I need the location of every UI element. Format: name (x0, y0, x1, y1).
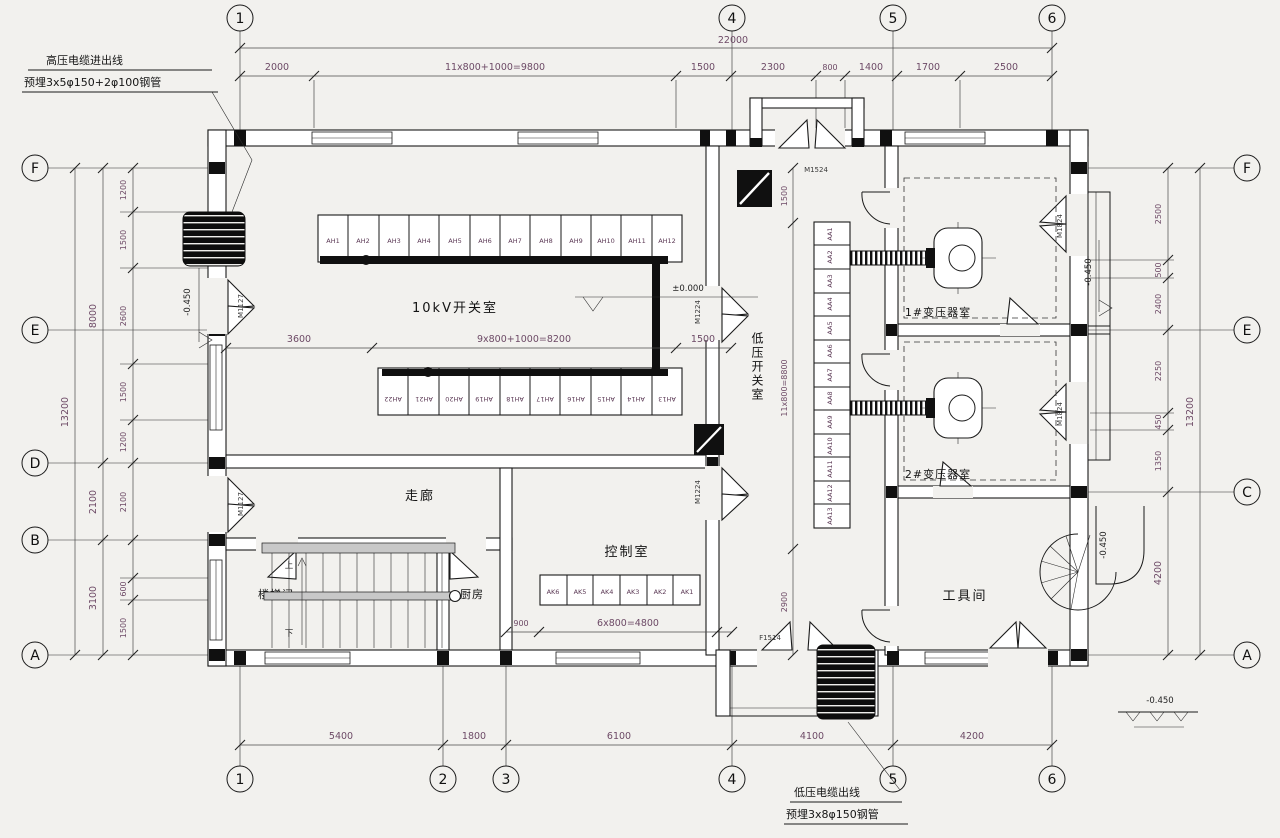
door-code-top: M1524 (804, 166, 828, 174)
window (210, 345, 222, 430)
cabinet-label: AH7 (508, 237, 521, 245)
elevation-value: ±0.000 (672, 284, 703, 294)
hv-cable-entry (183, 212, 245, 266)
bubble-bottom-5: 5 (889, 772, 898, 788)
bubble-top-1: 1 (236, 11, 245, 27)
cabinet-label: AA8 (826, 391, 834, 404)
room-label-10kv: 10kV开关室 (412, 300, 498, 316)
dim-bottom-seg: 4200 (960, 731, 984, 742)
cabinet-label: AH4 (417, 237, 430, 245)
dim-label: 3600 (287, 334, 311, 345)
dim-label: 900 (513, 619, 528, 628)
room-label-tool: 工具间 (942, 589, 987, 604)
cabinet-label: AA3 (826, 274, 834, 287)
cabinet-label: AH17 (536, 395, 554, 403)
dim-left-mid: 3100 (88, 586, 99, 610)
cabinet-label: AA13 (826, 507, 834, 524)
dim-right-outer: 13200 (1185, 397, 1196, 427)
cabinet-label: AK1 (681, 588, 694, 596)
stair-up-label: 上 (285, 561, 294, 571)
cabinet-label: AH13 (658, 395, 676, 403)
cabinet-label: AK4 (601, 588, 614, 596)
cabinet-label: AH18 (506, 395, 524, 403)
dim-left-inner: 1500 (119, 382, 128, 402)
cabinet-label: AH10 (597, 237, 615, 245)
cabinet-label: AA5 (826, 321, 834, 334)
dim-top-seg: 2500 (994, 62, 1018, 73)
cabinet-label: AA10 (826, 437, 834, 454)
door-code-mid-2: M1224 (694, 480, 702, 504)
annotation-hv-line1: 高压电缆进出线 (46, 53, 123, 67)
window (210, 560, 222, 640)
cabinet-label: AH1 (326, 237, 339, 245)
dim-right-inner: 500 (1154, 262, 1163, 277)
cabinet-row-top: AH1 AH2 AH3 AH4 AH5 AH6 AH7 AH8 AH9 AH10… (318, 215, 682, 262)
window (518, 132, 598, 144)
dim-right-inner: 450 (1154, 414, 1163, 429)
cabinet-label: AH15 (597, 395, 615, 403)
dim-left-inner: 1500 (119, 230, 128, 250)
window (265, 652, 350, 664)
window (905, 132, 985, 144)
room-label-control: 控制室 (604, 544, 649, 560)
dim-label: 1500 (780, 186, 789, 206)
dim-top-seg: 2300 (761, 62, 785, 73)
ground-elevation: -0.450 (1146, 696, 1173, 706)
cabinet-label: AH6 (478, 237, 491, 245)
cabinet-label: AH12 (658, 237, 676, 245)
room-label-lv-switch: 低压开关室 (750, 332, 764, 402)
cabinet-label: AA6 (826, 344, 834, 357)
cabinet-column-lv: AA1 AA2 AA3 AA4 AA5 AA6 AA7 AA8 AA9 AA10… (814, 222, 850, 528)
bubble-right-F: F (1243, 161, 1251, 177)
dim-left-inner: 1200 (119, 432, 128, 452)
bubble-bottom-3: 3 (502, 772, 511, 788)
cabinet-label: AH2 (356, 237, 369, 245)
dim-top-seg: 11x800+1000=9800 (445, 62, 545, 73)
dim-top-seg: 2000 (265, 62, 289, 73)
room-label-corridor: 走廊 (405, 488, 435, 504)
dim-label: 1500 (691, 334, 715, 345)
plan-svg: 1 4 5 6 1 2 3 4 5 6 F E D B A F E C A 22… (0, 0, 1280, 838)
annotation-lv-line2: 预埋3x8φ150钢管 (786, 807, 879, 821)
elevation-value: -0.450 (183, 288, 193, 315)
cabinet-label: AA12 (826, 484, 834, 501)
cabinet-label: AK6 (547, 588, 560, 596)
dim-left-outer: 13200 (60, 397, 71, 427)
dim-bottom-seg: 4100 (800, 731, 824, 742)
cabinet-label: AH11 (628, 237, 646, 245)
door-code-bottom: F1514 (759, 634, 781, 642)
dim-bottom-seg: 5400 (329, 731, 353, 742)
cabinet-label: AH14 (627, 395, 645, 403)
bubble-right-A: A (1242, 648, 1252, 664)
cabinet-label: AK5 (574, 588, 587, 596)
cabinet-label: AH3 (387, 237, 400, 245)
dim-top-seg: 800 (822, 63, 837, 72)
annotation-lv-line1: 低压电缆出线 (794, 785, 860, 799)
bubble-left-E: E (31, 323, 40, 339)
dim-right-inner: 4200 (1153, 561, 1164, 585)
cabinet-label: AH5 (448, 237, 461, 245)
dim-top-seg: 1400 (859, 62, 883, 73)
bubble-top-4: 4 (728, 11, 737, 27)
window (556, 652, 640, 664)
door-code-left-1: M1127 (237, 294, 245, 318)
dim-left-inner: 2100 (119, 492, 128, 512)
cabinet-label: AH21 (415, 395, 433, 403)
dim-left-inner: 600 (119, 581, 128, 596)
bubble-left-F: F (31, 161, 39, 177)
dim-label: 9x800+1000=8200 (477, 334, 571, 345)
elevation-spiral: -0.450 (1099, 531, 1109, 558)
cabinet-label: AH9 (569, 237, 582, 245)
cabinet-label: AA7 (826, 368, 834, 381)
bubble-top-6: 6 (1048, 11, 1057, 27)
dim-right-inner: 2500 (1154, 204, 1163, 224)
dim-bottom-seg: 6100 (607, 731, 631, 742)
cabinet-label: AH19 (475, 395, 493, 403)
cabinet-label: AA11 (826, 460, 834, 477)
dim-label: 6x800=4800 (597, 618, 659, 629)
floor-plan-drawing: 1 4 5 6 1 2 3 4 5 6 F E D B A F E C A 22… (0, 0, 1280, 838)
cabinet-label: AA1 (826, 227, 834, 240)
bubble-bottom-4: 4 (728, 772, 737, 788)
cabinet-label: AK3 (627, 588, 640, 596)
elevation-value: -0.450 (1084, 258, 1094, 285)
dim-left-inner: 2600 (119, 306, 128, 326)
window (312, 132, 392, 144)
dim-top-seg: 1500 (691, 62, 715, 73)
room-label-transformer1: 1#变压器室 (905, 305, 971, 319)
cabinet-label: AH22 (384, 395, 402, 403)
dim-bottom-seg: 1800 (462, 731, 486, 742)
door-code-right-2: M1824 (1056, 402, 1064, 426)
bubble-left-B: B (30, 533, 40, 549)
cabinet-label: AA4 (826, 297, 834, 310)
door-code-left-2: M1127 (237, 492, 245, 516)
cabinet-label: AK2 (654, 588, 667, 596)
dim-right-inner: 1350 (1154, 451, 1163, 471)
lv-cable-exit (817, 645, 875, 719)
cabinet-label: AA9 (826, 415, 834, 428)
dim-left-mid: 2100 (88, 490, 99, 514)
cabinet-label: AA2 (826, 250, 834, 263)
dim-left-mid: 8000 (88, 304, 99, 328)
dim-label: 2900 (780, 592, 789, 612)
dim-label: 11x800=8800 (780, 359, 789, 416)
dim-right-inner: 2250 (1154, 361, 1163, 381)
cabinet-label: AH8 (539, 237, 552, 245)
door-code-mid-1: M1224 (694, 300, 702, 324)
bubble-left-A: A (30, 648, 40, 664)
bubble-right-C: C (1242, 485, 1252, 501)
bubble-right-E: E (1243, 323, 1252, 339)
bubble-top-5: 5 (889, 11, 898, 27)
dim-total-top: 22000 (718, 35, 748, 46)
door-code-right-1: M1824 (1056, 214, 1064, 238)
dim-left-inner: 1500 (119, 618, 128, 638)
bubble-bottom-6: 6 (1048, 772, 1057, 788)
cabinet-label: AH16 (567, 395, 585, 403)
room-label-transformer2: 2#变压器室 (905, 467, 971, 481)
dim-right-inner: 2400 (1154, 294, 1163, 314)
dim-left-inner: 1200 (119, 180, 128, 200)
bubble-left-D: D (30, 456, 41, 472)
cabinet-label: AH20 (445, 395, 463, 403)
dim-top-seg: 1700 (916, 62, 940, 73)
annotation-hv-line2: 预埋3x5φ150+2φ100钢管 (24, 75, 161, 89)
bubble-bottom-2: 2 (439, 772, 448, 788)
bubble-bottom-1: 1 (236, 772, 245, 788)
cabinet-row-control: AK6 AK5 AK4 AK3 AK2 AK1 (540, 575, 700, 605)
stair-down-label: 下 (285, 629, 294, 639)
room-label-kitchen: 厨房 (460, 588, 484, 601)
